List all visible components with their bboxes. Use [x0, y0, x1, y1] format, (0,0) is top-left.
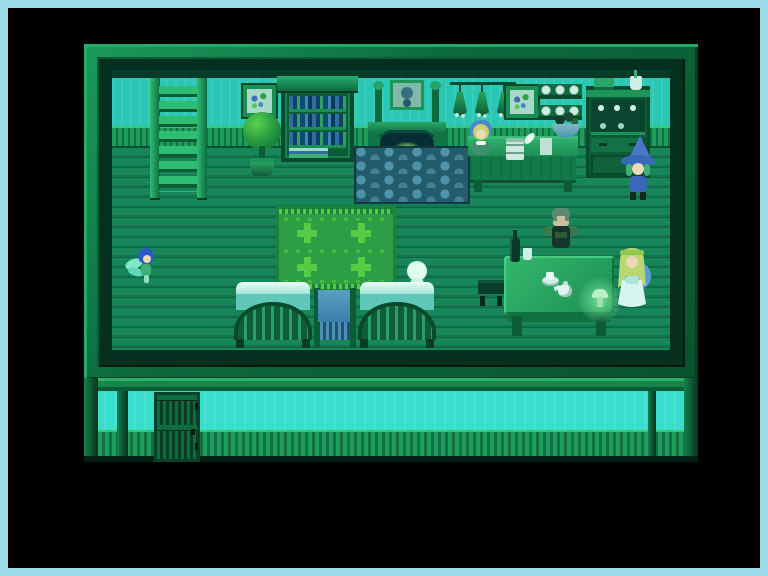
stool-leg — [480, 296, 485, 306]
teacup — [546, 272, 554, 280]
counter-leg — [564, 180, 572, 192]
table-leg — [512, 316, 522, 336]
bookshelf[interactable] — [281, 76, 354, 162]
stone-hearth — [354, 146, 470, 204]
painting-right — [506, 86, 538, 118]
ladder[interactable] — [150, 78, 207, 198]
portrait-figure — [401, 87, 413, 99]
stool — [478, 276, 504, 306]
door-hinge — [195, 403, 198, 410]
hutch-shelves — [591, 99, 645, 135]
book-stack — [289, 148, 328, 158]
exterior-wall — [84, 378, 698, 462]
blue-cloth — [318, 290, 352, 322]
npc-fairy-girl[interactable] — [612, 246, 652, 310]
candle-knob — [430, 81, 441, 90]
door-rail — [157, 395, 197, 400]
rug-motif — [296, 256, 318, 278]
bed-leg — [236, 339, 244, 348]
hutch-box — [594, 78, 614, 90]
drawer-handle — [599, 143, 607, 146]
herb-string — [503, 85, 505, 93]
book-row — [289, 132, 346, 148]
bed-leg — [302, 339, 310, 348]
book-row — [289, 114, 346, 130]
ladder-rail — [197, 78, 207, 198]
vegetable-bowl — [552, 112, 582, 146]
towel-rack — [314, 288, 356, 350]
stool-leg — [497, 296, 502, 306]
bed-right[interactable] — [358, 282, 436, 348]
plant-pot — [251, 162, 273, 176]
painting-art — [247, 89, 272, 113]
rug-motif — [350, 256, 372, 278]
painting-art — [510, 90, 534, 114]
potted-plant — [243, 112, 281, 178]
rug-motif — [296, 222, 318, 244]
herb-string — [459, 85, 461, 93]
stool-seat — [478, 280, 504, 294]
bookshelf-pediment — [277, 76, 358, 91]
patterned-rug — [276, 206, 396, 292]
wall-post — [648, 391, 656, 456]
bottle-body — [510, 238, 520, 262]
hutch-vase — [630, 76, 642, 90]
npc-warrior[interactable] — [540, 206, 582, 260]
cloth-fringe — [320, 322, 350, 340]
npc-innkeeper[interactable] — [466, 118, 496, 160]
teapot-lid — [563, 281, 568, 285]
inn-room — [112, 70, 670, 350]
rug-zigzag — [284, 250, 388, 253]
herb-bundle — [452, 85, 468, 121]
ceiling-shadow — [112, 70, 670, 78]
herb-string — [481, 85, 483, 93]
candle-stand — [432, 86, 439, 126]
wall-post — [84, 378, 98, 456]
rack-post — [350, 288, 356, 348]
bed-leg — [360, 339, 368, 348]
quill-feather — [523, 131, 536, 146]
counter-leg — [474, 180, 482, 192]
plant-foliage — [243, 112, 281, 150]
inn-building-frame — [84, 44, 698, 380]
cup — [523, 248, 532, 260]
hutch-crown — [586, 90, 650, 97]
npc-fairy[interactable] — [124, 242, 160, 290]
bed-leg — [426, 339, 434, 348]
loose-paper — [540, 138, 552, 155]
herb-flowers — [454, 112, 466, 119]
bowl — [552, 124, 580, 138]
door-hinge — [195, 443, 198, 450]
teapot-body — [558, 284, 572, 297]
rug-motif — [350, 222, 372, 244]
guest-ledger[interactable] — [506, 138, 524, 160]
candle-stand — [375, 86, 382, 126]
npc-witch[interactable] — [620, 134, 656, 204]
plate-row — [538, 84, 582, 99]
vase-sprig — [634, 70, 637, 78]
entrance-door[interactable] — [154, 392, 200, 462]
herb-bundle — [474, 85, 490, 121]
eave-beam — [84, 378, 698, 391]
bed-left[interactable] — [234, 282, 312, 348]
wine-bottle — [510, 230, 520, 262]
quill-pen — [524, 132, 536, 148]
wall-post — [684, 378, 698, 456]
game-screen — [0, 0, 768, 576]
rug-fringe — [279, 209, 393, 214]
wall-post — [117, 391, 128, 456]
ladder-rungs — [159, 82, 198, 192]
book-row — [289, 96, 346, 112]
mantel-portrait — [390, 80, 424, 110]
teapot — [554, 280, 576, 298]
mushroom-stem — [597, 297, 603, 307]
door-knob — [191, 429, 195, 435]
rug-zigzag — [284, 218, 388, 221]
candle-knob — [373, 81, 384, 90]
